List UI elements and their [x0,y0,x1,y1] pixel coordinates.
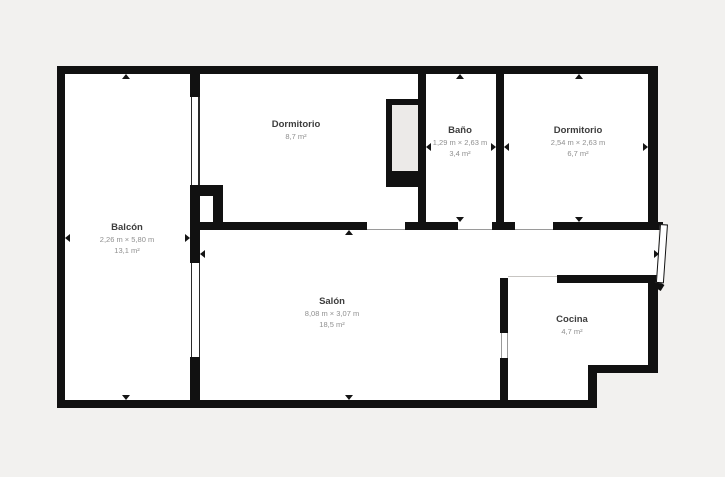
bathroom-dim-arrow-left [426,143,431,151]
mid-wall-segment-1 [190,222,367,230]
balcony-dim-arrow-left [65,234,70,242]
bedroom2-door-opening-line [515,229,553,230]
bottom-right-notch-exterior [597,373,658,408]
salon-dim-arrow-right [654,250,659,258]
bathroom-dim-arrow-up [456,74,464,79]
bedroom2-dim-arrow-down [575,217,583,222]
shaft-cavity [392,105,418,171]
bathroom-dim-arrow-right [491,143,496,151]
mid-wall-segment-2 [405,222,458,230]
bedroom2-dim-arrow-right [643,143,648,151]
outer-wall-left [57,66,65,408]
outer-wall-right-upper [648,66,658,222]
bedroom2-dim-arrow-up [575,74,583,79]
mid-wall-segment-3 [492,222,515,230]
bedroom1-door-opening-line [367,229,405,230]
kitchen-left-wall-lower [500,358,508,400]
bathroom-bedroom-divider-wall [496,74,504,222]
bedroom2-dim-arrow-left [504,143,509,151]
mid-wall-segment-4 [553,222,663,230]
bathroom-dim-arrow-down [456,217,464,222]
outer-wall-top [57,66,658,74]
balcony-wall-top-segment [190,74,200,97]
salon-dim-arrow-up [345,230,353,235]
balcony-dim-arrow-down [122,395,130,400]
outer-wall-right-lower [648,283,658,373]
balcony-upper-window-line-right [198,97,200,185]
balcony-dim-arrow-right [185,234,190,242]
notch-wall-vertical [588,365,597,408]
notch-wall-horizontal [588,365,658,373]
closet-stub-wall [190,185,223,196]
kitchen-open-boundary-line [508,276,557,277]
balcony-upper-window-line-left [191,97,193,185]
balcony-lower-window-line-left [191,263,193,357]
salon-dim-arrow-left [200,250,205,258]
kitchen-door-line-right [507,333,508,358]
apartment-interior [57,66,658,408]
floor-plan: Balcón 2,26 m × 5,80 m 13,1 m² Dormitori… [0,0,725,477]
outer-wall-bottom [57,400,597,408]
kitchen-door-line-left [501,333,502,358]
balcony-dim-arrow-up [122,74,130,79]
balcony-lower-window-line-right [199,263,201,357]
kitchen-left-wall-upper [500,278,508,333]
balcony-wall-bottom-segment [190,357,200,408]
salon-dim-arrow-down [345,395,353,400]
bathroom-door-opening-line [458,229,492,230]
